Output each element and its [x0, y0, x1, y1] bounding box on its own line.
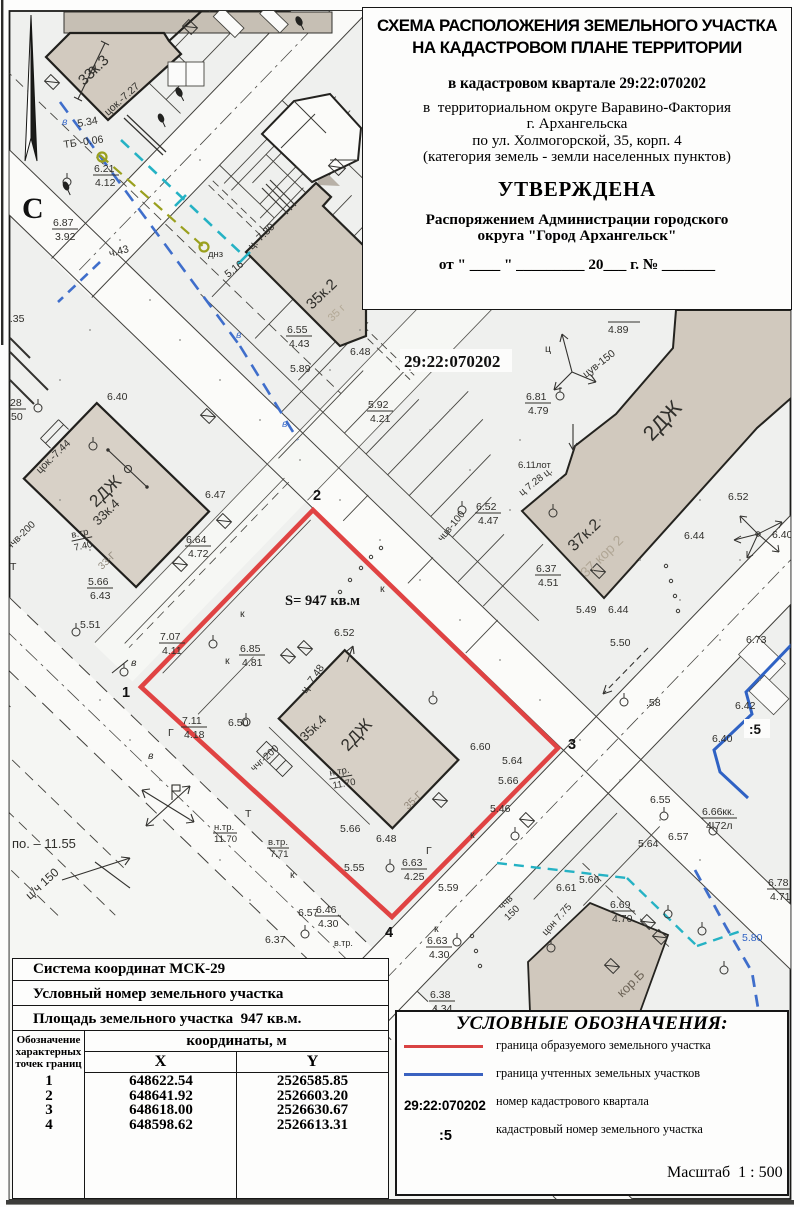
svg-text:6.42: 6.42: [735, 700, 756, 712]
svg-text:к: к: [225, 655, 230, 667]
svg-text:к: к: [470, 829, 475, 841]
svg-text:в.тр.: в.тр.: [334, 938, 353, 948]
svg-text:6.52: 6.52: [476, 501, 497, 513]
svg-text:6.47: 6.47: [205, 489, 226, 501]
svg-text:6.44: 6.44: [608, 604, 629, 616]
svg-text:в: в: [236, 329, 242, 341]
svg-text:4.89: 4.89: [608, 324, 629, 336]
svg-text:5.66: 5.66: [88, 576, 109, 588]
svg-text:6.46: 6.46: [316, 904, 337, 916]
svg-text:6.52: 6.52: [334, 627, 355, 639]
svg-text:3.92: 3.92: [55, 231, 76, 243]
svg-text:4.71: 4.71: [770, 891, 791, 903]
svg-text:7.11: 7.11: [182, 715, 202, 727]
svg-text:к: к: [290, 869, 295, 881]
svg-text:6.87: 6.87: [53, 217, 74, 229]
svg-text:7.07: 7.07: [160, 631, 181, 643]
svg-text:4.72л: 4.72л: [706, 820, 733, 832]
svg-text:6.52: 6.52: [728, 491, 749, 503]
svg-text:6.44: 6.44: [684, 530, 705, 542]
svg-text:Т: Т: [10, 561, 17, 573]
svg-text:.58: .58: [646, 697, 661, 709]
svg-text:50: 50: [11, 411, 23, 423]
svg-text:6.78: 6.78: [768, 877, 789, 889]
svg-text:4.11: 4.11: [162, 645, 182, 657]
svg-text:4.51: 4.51: [538, 577, 559, 589]
svg-text:5.55: 5.55: [344, 862, 365, 874]
svg-text:6.48: 6.48: [350, 346, 371, 358]
svg-text:5.66: 5.66: [340, 823, 361, 835]
svg-text:Г: Г: [168, 727, 174, 739]
svg-text:6.69: 6.69: [610, 899, 631, 911]
svg-text:Г: Г: [426, 845, 432, 857]
svg-text:6.40: 6.40: [772, 529, 793, 541]
svg-text:4: 4: [385, 925, 393, 941]
svg-text:6.60: 6.60: [470, 741, 491, 753]
svg-text:6.63: 6.63: [427, 935, 448, 947]
svg-text:4.72: 4.72: [188, 548, 209, 560]
svg-text:в: в: [131, 657, 137, 669]
svg-text:днз: днз: [208, 249, 223, 260]
svg-text:5.35: 5.35: [4, 313, 25, 325]
svg-text:С: С: [22, 192, 44, 225]
svg-text:6.50: 6.50: [228, 717, 249, 729]
svg-text:5.49: 5.49: [576, 604, 597, 616]
svg-text:4.18: 4.18: [184, 729, 205, 741]
svg-text:4.12: 4.12: [95, 177, 116, 189]
svg-text:1: 1: [122, 685, 130, 701]
svg-text:6.40: 6.40: [712, 733, 733, 745]
svg-text:по. – 11.55: по. – 11.55: [12, 836, 76, 851]
svg-text:6.57: 6.57: [298, 907, 319, 919]
svg-text:28: 28: [10, 397, 22, 409]
svg-text:6.37: 6.37: [536, 563, 557, 575]
svg-text:29:22:070202: 29:22:070202: [404, 352, 500, 371]
svg-text:5.66: 5.66: [579, 874, 600, 886]
svg-text:4.25: 4.25: [404, 871, 425, 883]
svg-text:6.38: 6.38: [430, 989, 451, 1001]
svg-text:к: к: [434, 923, 439, 935]
svg-text:6.55: 6.55: [287, 324, 308, 336]
svg-text:11.70: 11.70: [214, 834, 237, 845]
svg-text:Т: Т: [245, 808, 252, 820]
svg-text:5.64: 5.64: [502, 755, 523, 767]
svg-text:6.55: 6.55: [650, 794, 671, 806]
svg-text:7.71: 7.71: [270, 849, 289, 860]
svg-text::5: :5: [749, 722, 761, 737]
svg-text:4.21: 4.21: [370, 413, 391, 425]
svg-text:н.тр.: н.тр.: [214, 822, 234, 833]
svg-text:2: 2: [313, 488, 321, 504]
svg-text:3: 3: [568, 737, 576, 753]
svg-text:6.61: 6.61: [556, 882, 577, 894]
svg-text:ц: ц: [545, 343, 551, 355]
svg-text:6.37: 6.37: [265, 934, 286, 946]
svg-text:к: к: [380, 583, 385, 595]
svg-text:5.80: 5.80: [742, 932, 763, 944]
svg-text:4.47: 4.47: [478, 515, 499, 527]
svg-text:5.50: 5.50: [610, 637, 631, 649]
svg-text:6.63: 6.63: [402, 857, 423, 869]
svg-text:5.59: 5.59: [438, 882, 459, 894]
svg-text:6.73: 6.73: [746, 634, 767, 646]
svg-text:4.30: 4.30: [318, 918, 339, 930]
svg-text:5.64: 5.64: [638, 838, 659, 850]
svg-text:в: в: [148, 750, 154, 762]
svg-text:5.51: 5.51: [80, 619, 101, 631]
svg-text:5.46: 5.46: [490, 803, 511, 815]
svg-text:4.81: 4.81: [242, 657, 263, 669]
svg-text:6.21: 6.21: [94, 163, 115, 175]
svg-text:6.40: 6.40: [107, 391, 128, 403]
svg-text:5.92: 5.92: [368, 399, 389, 411]
svg-text:4.30: 4.30: [429, 949, 450, 961]
svg-text:в.тр.: в.тр.: [268, 837, 288, 848]
svg-text:в: в: [282, 418, 288, 430]
svg-text:5.89: 5.89: [290, 363, 311, 375]
svg-text:6.48: 6.48: [376, 833, 397, 845]
svg-text:5.66: 5.66: [498, 775, 519, 787]
svg-text:6.66кк.: 6.66кк.: [702, 806, 735, 818]
svg-text:6.81: 6.81: [526, 391, 547, 403]
svg-text:4.43: 4.43: [289, 338, 310, 350]
svg-text:6.43: 6.43: [90, 590, 111, 602]
svg-text:к: к: [240, 608, 245, 620]
svg-text:в: в: [62, 116, 68, 128]
svg-text:S= 947 кв.м: S= 947 кв.м: [285, 593, 360, 609]
svg-text:6.64: 6.64: [186, 534, 207, 546]
svg-text:6.85: 6.85: [240, 643, 261, 655]
svg-text:4.70: 4.70: [612, 913, 633, 925]
svg-text:6.57: 6.57: [668, 831, 689, 843]
svg-text:4.79: 4.79: [528, 405, 549, 417]
